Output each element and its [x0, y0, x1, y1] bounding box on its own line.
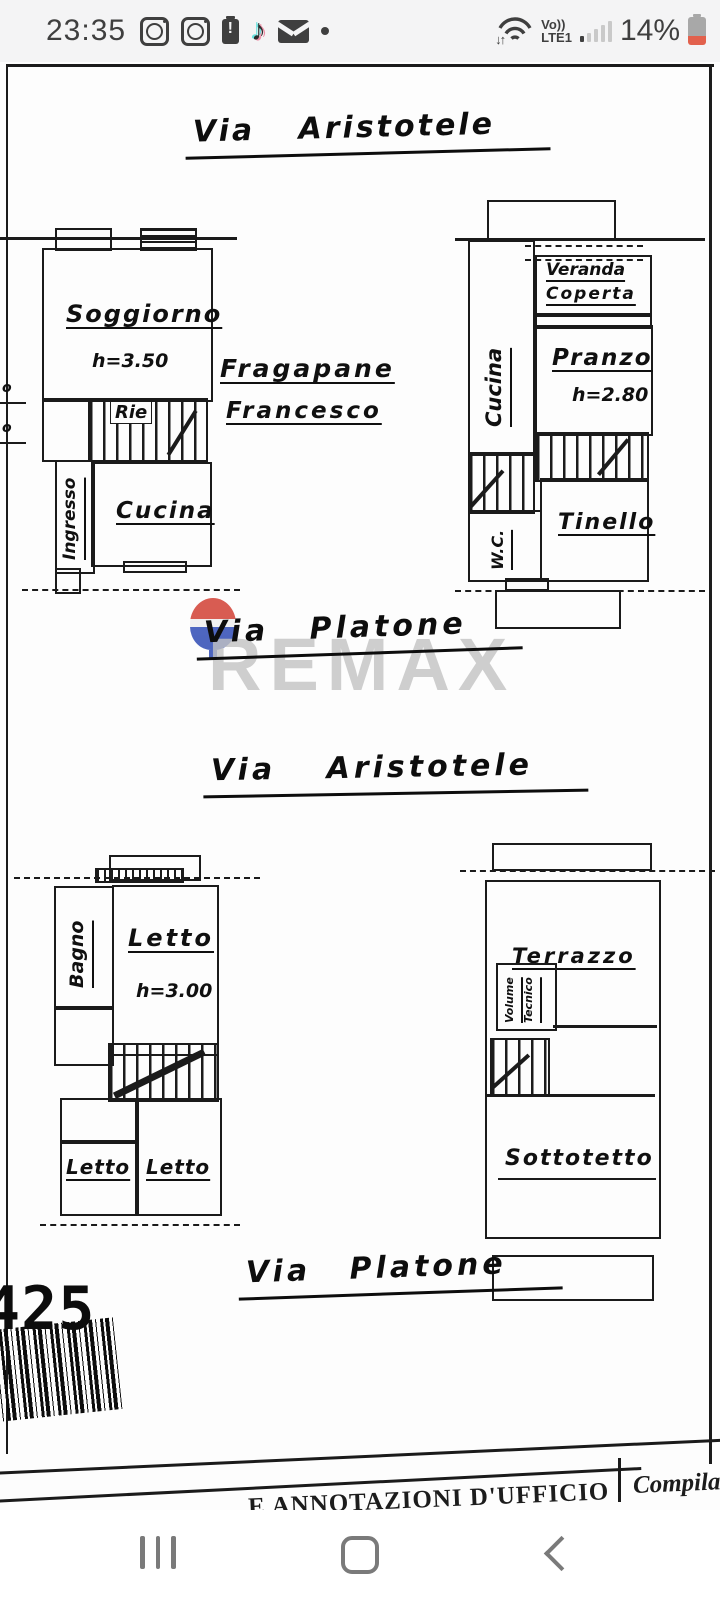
- battery-alert-icon: [222, 19, 239, 44]
- gmail-icon: [278, 20, 309, 43]
- footer-divider: [618, 1458, 621, 1502]
- android-navigation-bar: [0, 1510, 720, 1600]
- owner-name-line1: Fragapane: [220, 354, 395, 383]
- margin-mark-line: [0, 402, 26, 404]
- home-button[interactable]: [341, 1536, 379, 1574]
- plan2-stairs-right: [535, 432, 649, 482]
- signal-bars-icon: [580, 20, 612, 42]
- wifi-icon: ↓↑: [497, 17, 533, 45]
- owner-name-line2: Francesco: [226, 398, 382, 424]
- notification-icons: ♪: [140, 16, 329, 46]
- page-top-edge: [6, 64, 714, 67]
- room-label-sottotetto: Sottotetto: [505, 1146, 654, 1171]
- room-height-soggiorno: h=3.50: [92, 350, 168, 372]
- room-label-ingresso: Ingresso: [60, 472, 80, 560]
- instagram-icon: [181, 17, 210, 46]
- status-bar: 23:35 ♪ ↓↑ Vo)) LTE1: [0, 0, 720, 62]
- plan3-hall: [60, 1098, 139, 1144]
- back-button[interactable]: [544, 1536, 579, 1571]
- battery-percent: 14%: [620, 14, 680, 48]
- room-label-tinello: Tinello: [558, 510, 655, 535]
- plan2-room-pranzo: [535, 325, 653, 436]
- room-label-wc: W.C.: [488, 518, 507, 570]
- floorplan-document-canvas[interactable]: Via Aristotele Soggiorno h=3.50 Rie Ingr…: [0, 62, 720, 1510]
- plan2-roof-box: [487, 200, 616, 241]
- margin-mark: o: [2, 380, 12, 396]
- room-label-volume-2: Tecnico: [522, 967, 535, 1023]
- plan4-sottotetto-underline: [498, 1178, 656, 1180]
- street-title-aristotele-2: Via Aristotele: [203, 747, 589, 799]
- plan1-landing: [42, 398, 90, 462]
- room-height-letto: h=3.00: [136, 980, 212, 1002]
- lte-label: LTE1: [541, 31, 572, 44]
- room-label-letto-big: Letto: [146, 1155, 210, 1179]
- room-label-veranda-2: Coperta: [546, 284, 636, 304]
- phone-screen: 23:35 ♪ ↓↑ Vo)) LTE1: [0, 0, 720, 1600]
- more-notifications-icon: [321, 27, 329, 35]
- room-label-rie: Rie: [110, 401, 152, 424]
- footer-compilato-text: Compilat: [632, 1468, 720, 1500]
- street-title-aristotele-1: Via Aristotele: [184, 105, 550, 160]
- room-label-cucina: Cucina: [116, 498, 215, 524]
- plan4-stairs: [490, 1038, 550, 1096]
- barcode: [0, 1317, 122, 1422]
- recents-button[interactable]: [140, 1536, 176, 1569]
- clock: 23:35: [46, 14, 126, 48]
- status-indicators: ↓↑ Vo)) LTE1 14%: [497, 0, 706, 62]
- plan3-closet: [54, 1006, 114, 1066]
- battery-icon: [688, 17, 706, 45]
- room-label-pranzo: Pranzo: [552, 345, 653, 371]
- room-label-letto-small: Letto: [66, 1155, 130, 1179]
- plan3-room-letto-main: [112, 885, 219, 1056]
- tiktok-icon: ♪: [251, 16, 266, 46]
- plan4-sottotetto-wall: [487, 1094, 655, 1097]
- page-left-edge: [6, 64, 8, 1454]
- volte-indicator: Vo)) LTE1: [541, 18, 572, 44]
- room-label-soggiorno: Soggiorno: [66, 300, 222, 328]
- instagram-icon: [140, 17, 169, 46]
- room-label-letto-main: Letto: [128, 924, 214, 952]
- page-right-edge: [709, 64, 712, 1464]
- plan2-stairs-left: [468, 452, 535, 514]
- plan4-balcony-top: [492, 843, 652, 871]
- plan4-terrazzo-wall: [553, 1025, 657, 1028]
- footer-annotazioni-text: E ANNOTAZIONI D'UFFICIO: [248, 1478, 610, 1510]
- plan3-window-top: [95, 868, 184, 883]
- plan3-boundary-line: [40, 1224, 240, 1226]
- margin-mark: o: [2, 420, 12, 436]
- room-label-veranda-1: Veranda: [546, 260, 625, 280]
- plan1-ref-line: [0, 237, 237, 240]
- room-label-bagno: Bagno: [66, 908, 88, 988]
- margin-mark-line: [0, 442, 26, 444]
- plan2-dashed-overhang-1: [525, 245, 643, 247]
- plan4-ref-line: [460, 870, 715, 872]
- room-label-cucina-2: Cucina: [482, 267, 506, 427]
- room-label-volume-1: Volume: [503, 967, 516, 1023]
- room-height-pranzo: h=2.80: [572, 384, 648, 406]
- plan1-window-bottom: [123, 561, 187, 573]
- wifi-traffic-arrows-icon: ↓↑: [495, 32, 504, 47]
- plan1-boundary-line: [22, 589, 240, 591]
